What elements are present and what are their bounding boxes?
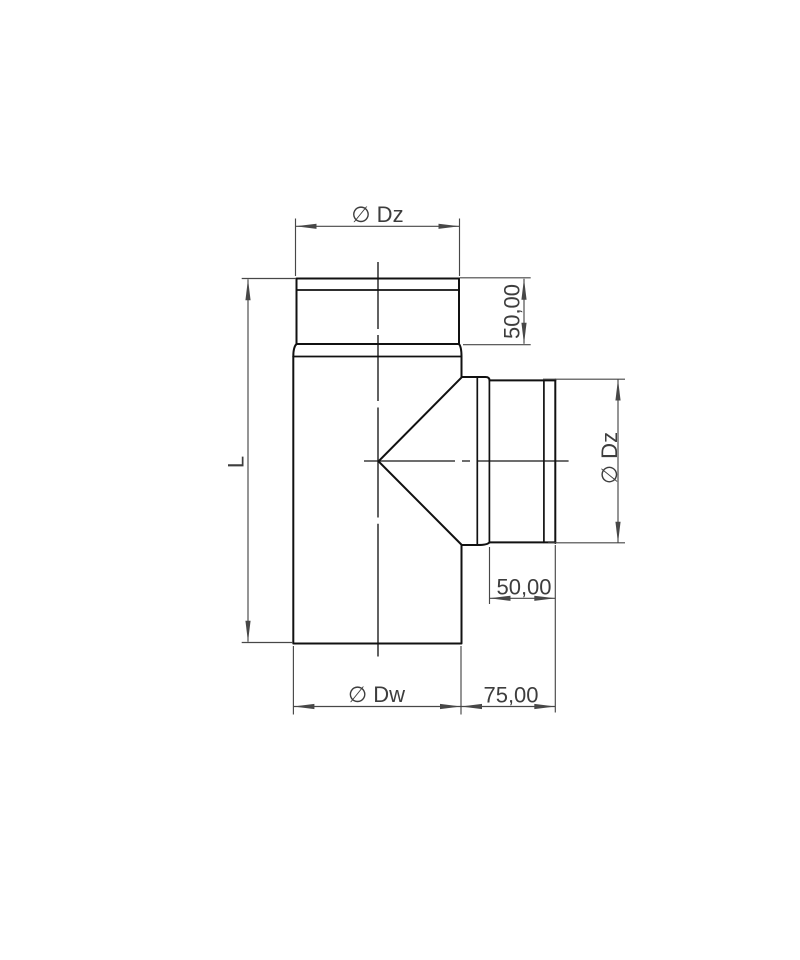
svg-text:50,00: 50,00 [500, 284, 525, 339]
svg-text:∅ Dz: ∅ Dz [351, 202, 403, 227]
svg-text:75,00: 75,00 [483, 683, 538, 708]
svg-text:∅ Dz: ∅ Dz [597, 432, 622, 484]
svg-text:L: L [224, 456, 249, 468]
svg-text:∅ Dw: ∅ Dw [348, 682, 405, 707]
svg-text:50,00: 50,00 [496, 575, 551, 600]
